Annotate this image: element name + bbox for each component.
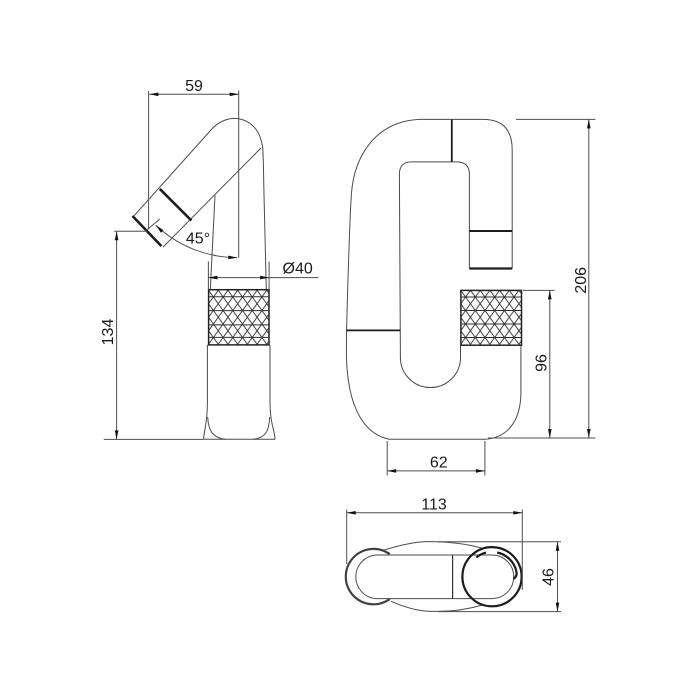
svg-text:45°: 45° (186, 231, 210, 248)
svg-text:59: 59 (185, 78, 203, 95)
svg-text:206: 206 (573, 267, 590, 294)
svg-text:113: 113 (421, 496, 447, 513)
svg-text:46: 46 (541, 568, 558, 586)
svg-text:62: 62 (430, 454, 448, 471)
svg-text:Ø40: Ø40 (283, 260, 313, 277)
svg-text:134: 134 (100, 319, 117, 346)
svg-text:96: 96 (533, 354, 550, 372)
